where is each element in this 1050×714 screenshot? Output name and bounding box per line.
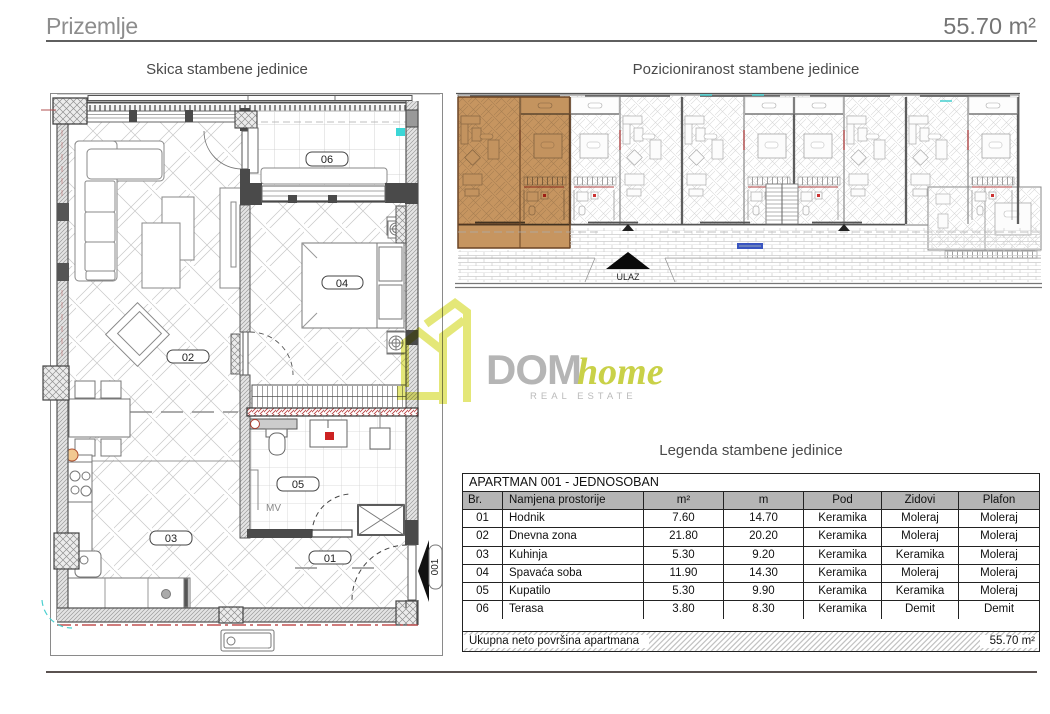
svg-text:DOM: DOM xyxy=(486,346,581,393)
svg-text:REAL ESTATE: REAL ESTATE xyxy=(530,391,637,402)
svg-text:01: 01 xyxy=(324,553,336,565)
svg-text:06: 06 xyxy=(321,154,333,166)
svg-text:home: home xyxy=(577,351,664,393)
svg-text:05: 05 xyxy=(292,479,304,491)
svg-text:02: 02 xyxy=(182,352,194,364)
svg-text:ULAZ: ULAZ xyxy=(616,272,640,282)
svg-text:MV: MV xyxy=(266,503,281,514)
svg-text:03: 03 xyxy=(165,533,177,545)
svg-text:001: 001 xyxy=(430,558,441,575)
svg-text:04: 04 xyxy=(336,278,348,290)
